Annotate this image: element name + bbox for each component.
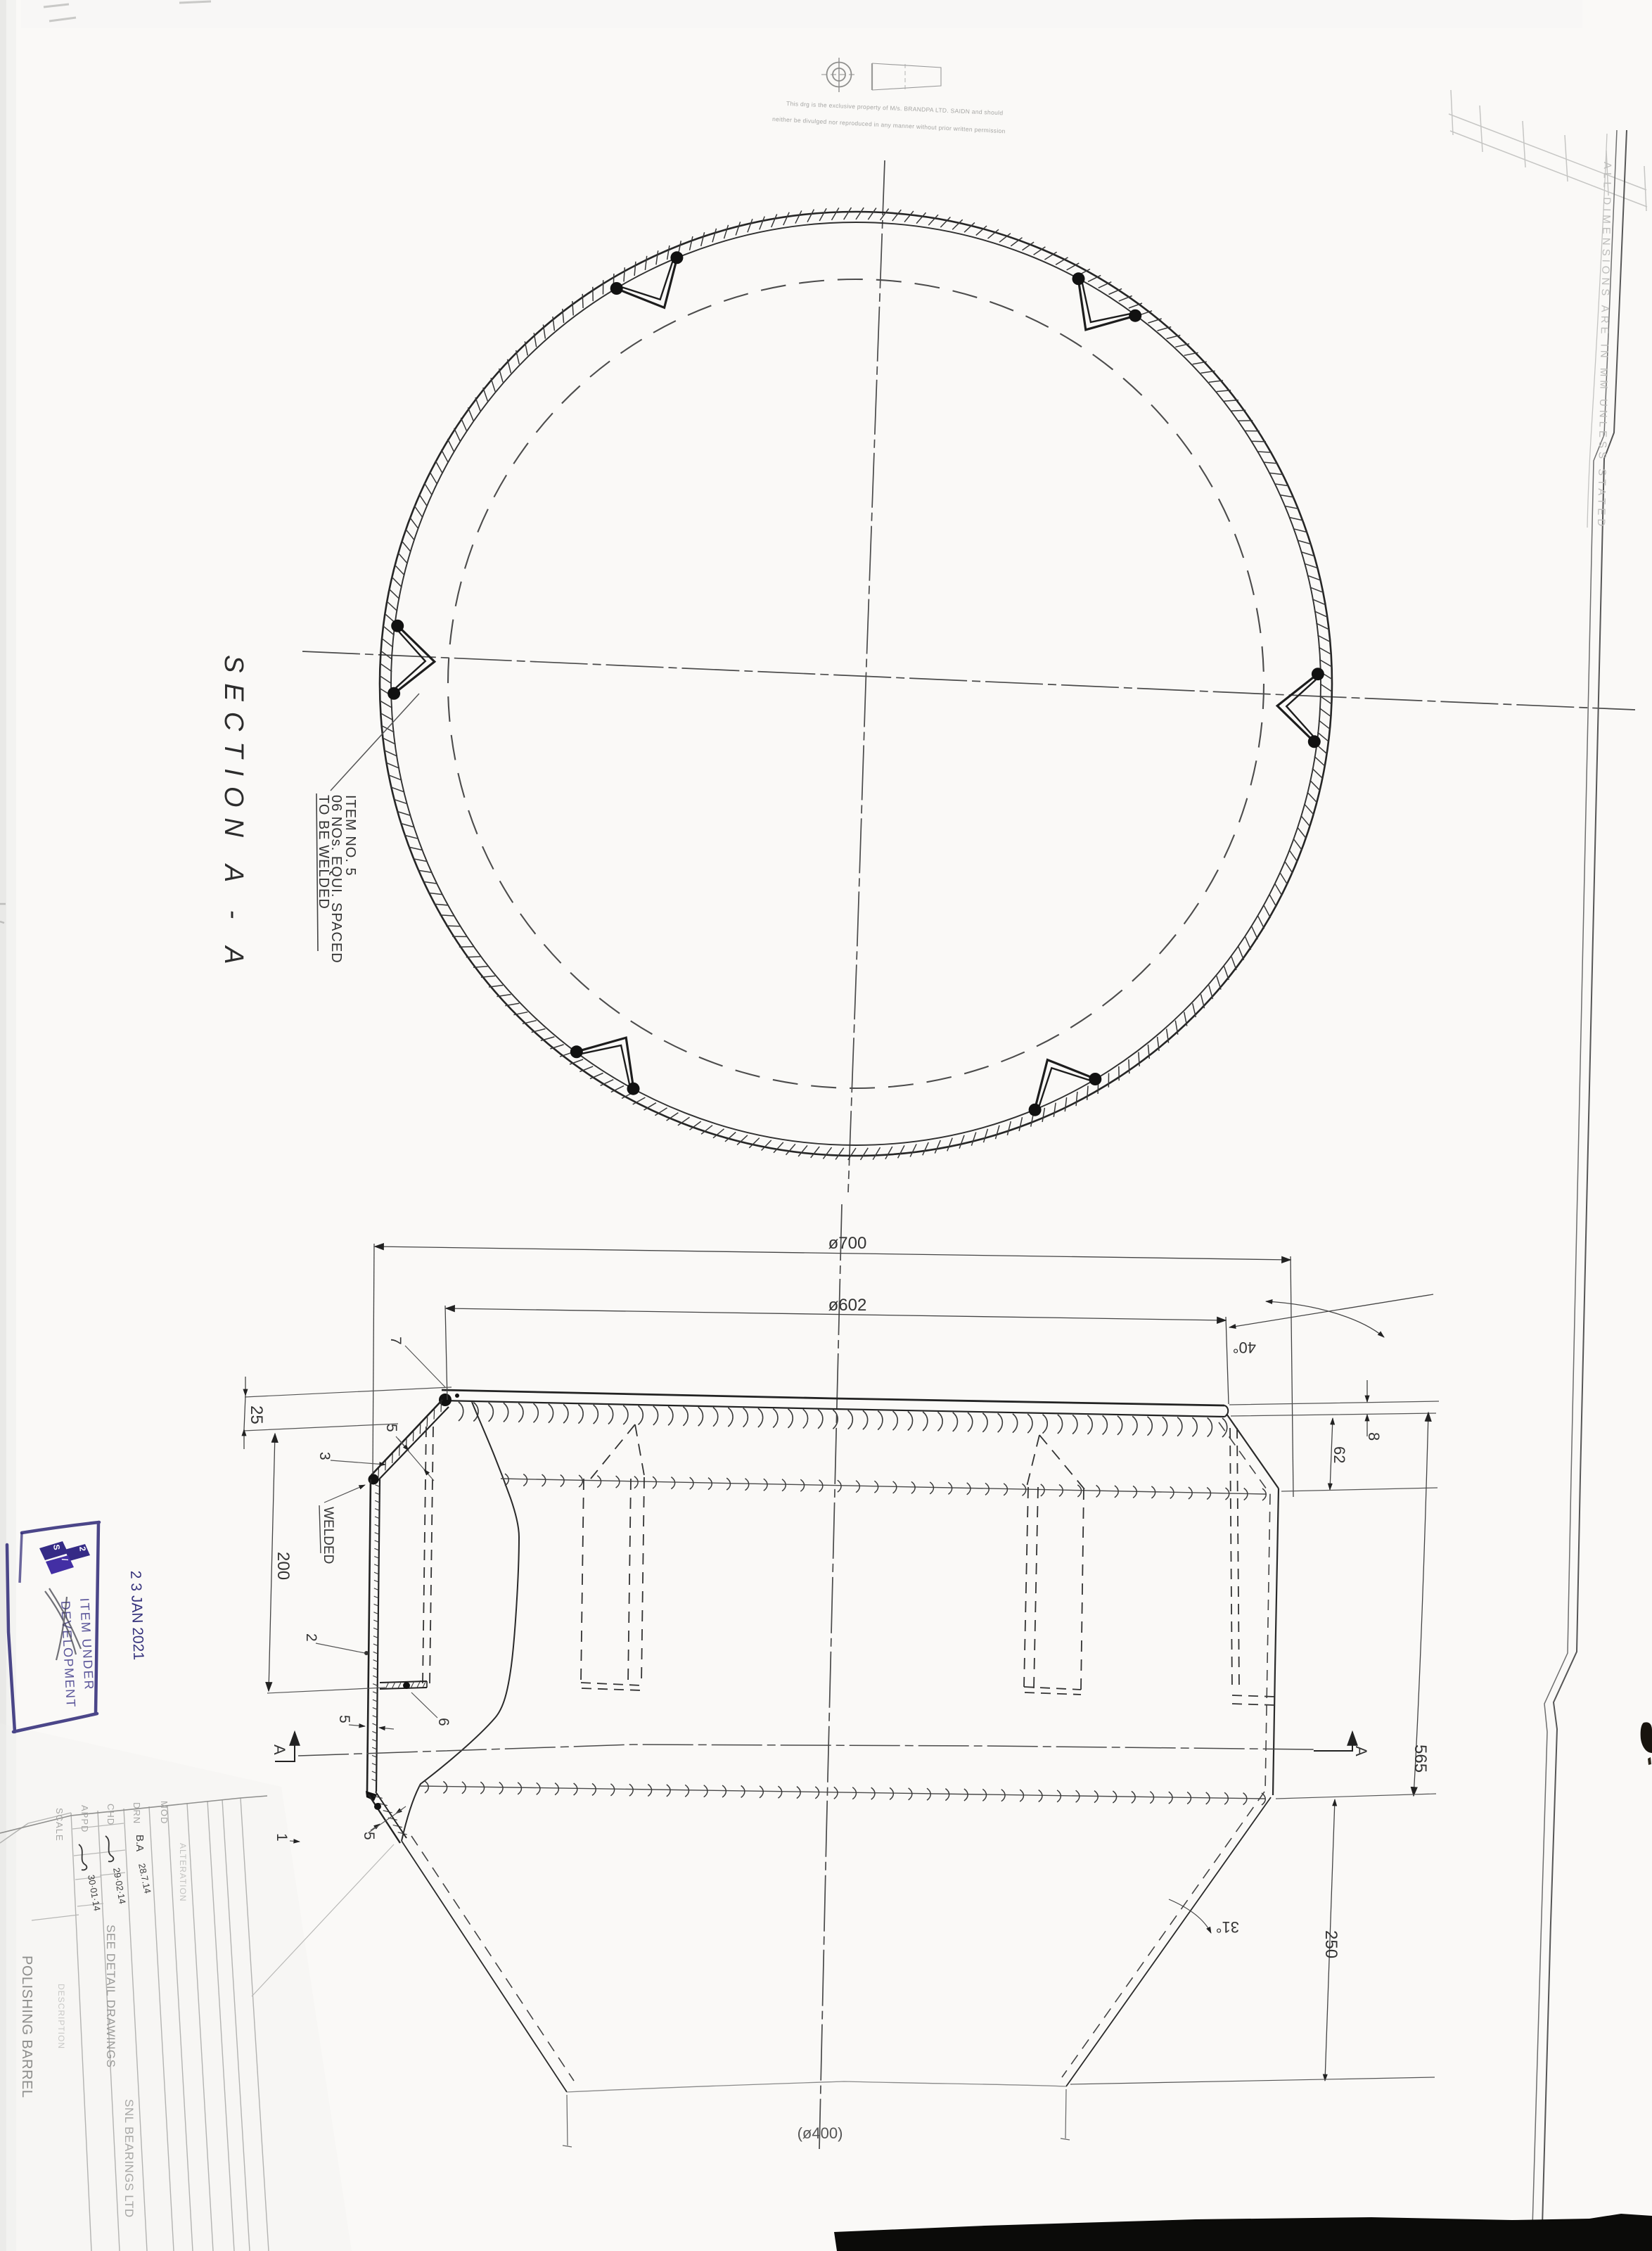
svg-text:SNL BEARINGS LTD: SNL BEARINGS LTD <box>122 2099 136 2218</box>
svg-text:2 3 JAN 2021: 2 3 JAN 2021 <box>127 1570 146 1660</box>
svg-text:MOD: MOD <box>159 1801 169 1824</box>
svg-text:6: 6 <box>435 1718 452 1726</box>
svg-text:8: 8 <box>1365 1432 1383 1441</box>
svg-text:62: 62 <box>1331 1446 1348 1463</box>
svg-text:(ø400): (ø400) <box>798 2124 843 2142</box>
svg-text:2: 2 <box>303 1633 319 1642</box>
svg-text:WELDED: WELDED <box>321 1507 335 1564</box>
svg-text:DESCRIPTION: DESCRIPTION <box>56 1984 66 2049</box>
svg-text:40°: 40° <box>1233 1339 1256 1356</box>
svg-text:SECTION A - A: SECTION A - A <box>219 655 248 975</box>
svg-text:TO BE WELDED: TO BE WELDED <box>316 795 331 910</box>
svg-text:3: 3 <box>316 1452 333 1460</box>
svg-text:250: 250 <box>1321 1930 1340 1958</box>
svg-text:A: A <box>1352 1746 1370 1756</box>
svg-text:POLISHING BARREL: POLISHING BARREL <box>19 1956 34 2098</box>
svg-text:ALTERATION: ALTERATION <box>178 1843 188 1902</box>
svg-text:5: 5 <box>361 1832 377 1840</box>
svg-text:1: 1 <box>274 1833 290 1842</box>
svg-text:CHD: CHD <box>105 1804 116 1825</box>
svg-text:5: 5 <box>336 1715 352 1723</box>
svg-text:565: 565 <box>1411 1745 1430 1773</box>
svg-text:S: S <box>51 1544 62 1551</box>
svg-text:ITEM NO. 5: ITEM NO. 5 <box>342 795 358 876</box>
svg-text:25: 25 <box>247 1405 266 1424</box>
svg-text:SEE DETAIL DRAWINGS: SEE DETAIL DRAWINGS <box>104 1925 117 2067</box>
svg-text:7: 7 <box>388 1337 404 1345</box>
svg-text:200: 200 <box>274 1552 293 1580</box>
svg-text:31°: 31° <box>1216 1918 1239 1936</box>
svg-text:A: A <box>271 1745 288 1755</box>
svg-text:ø700: ø700 <box>828 1234 867 1253</box>
svg-text:B.A: B.A <box>134 1835 146 1851</box>
svg-text:ø602: ø602 <box>828 1296 867 1315</box>
svg-text:SCALE: SCALE <box>54 1808 65 1842</box>
svg-text:5: 5 <box>383 1424 399 1432</box>
svg-text:DRN: DRN <box>132 1802 142 1824</box>
svg-text:APPD: APPD <box>79 1805 90 1832</box>
